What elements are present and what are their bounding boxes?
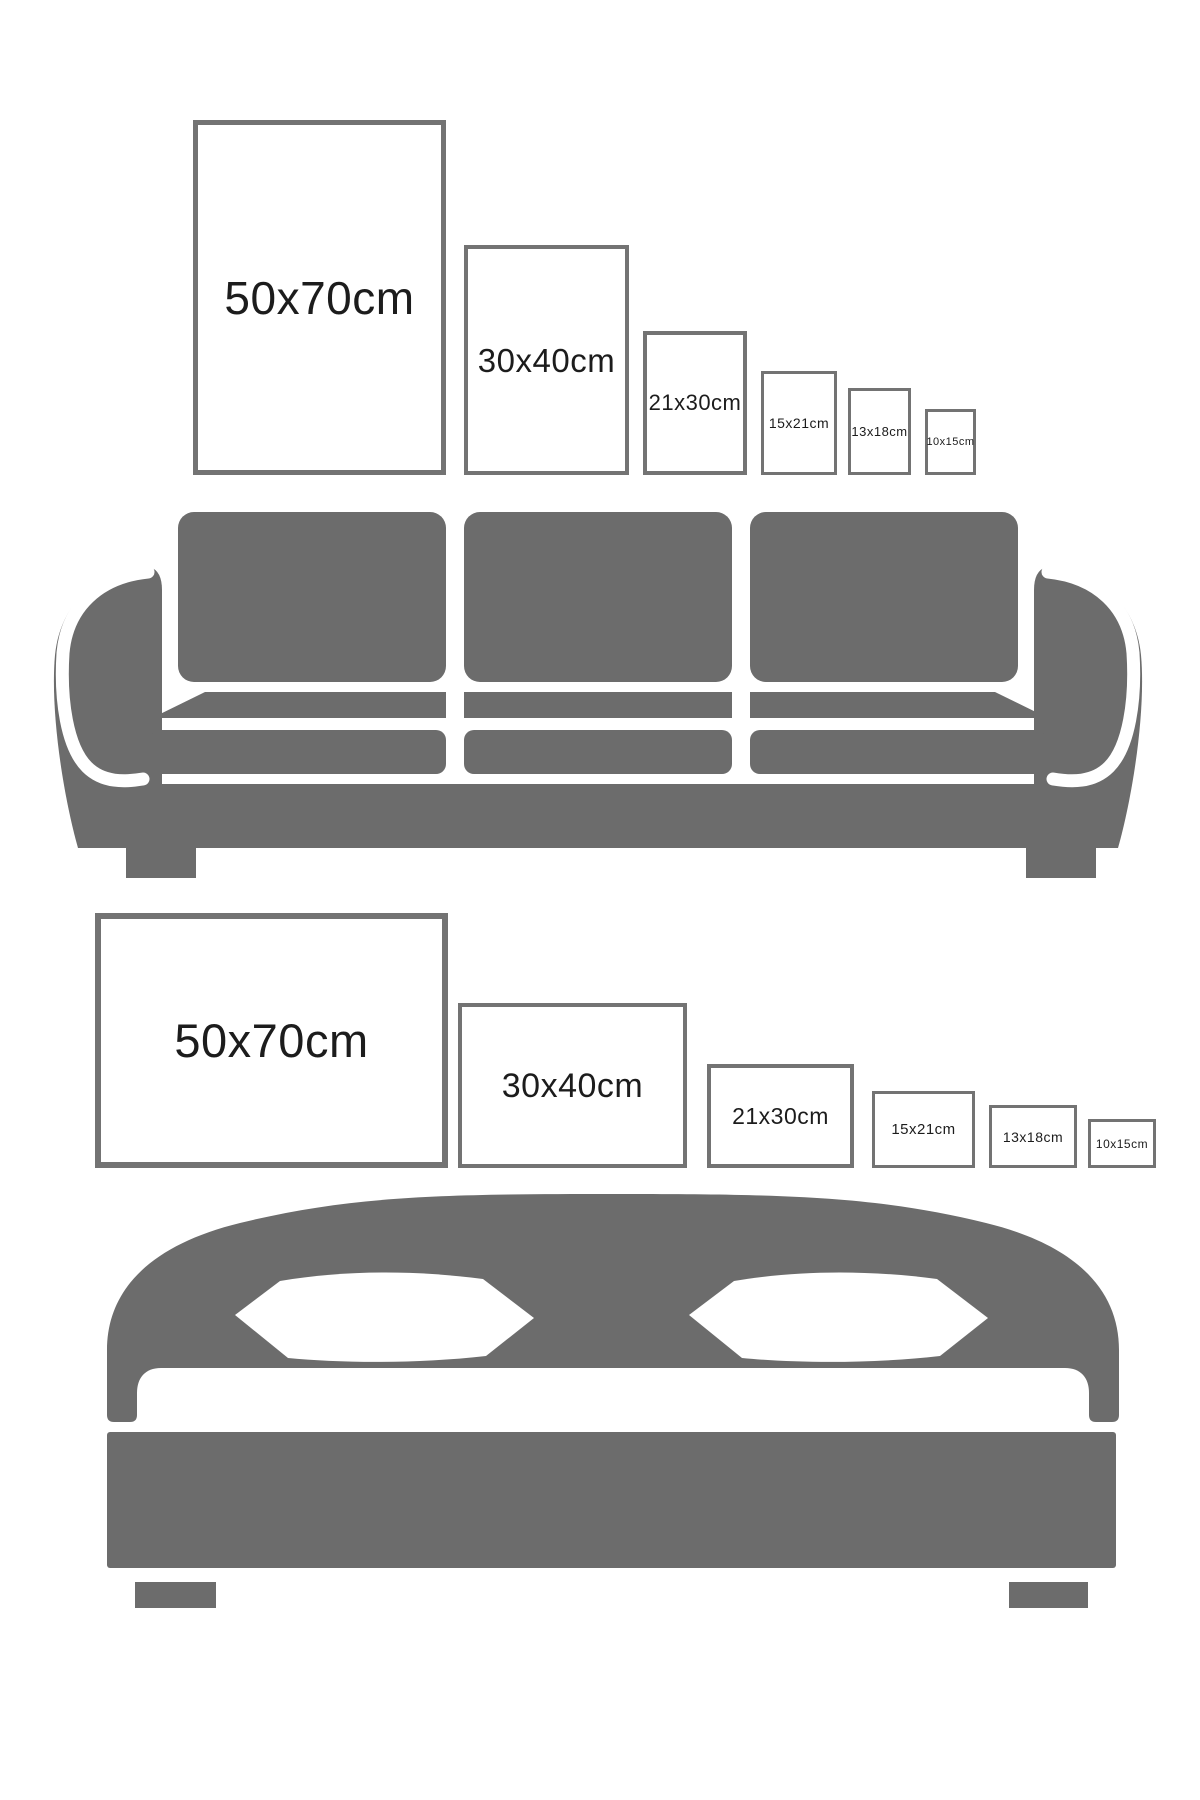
size-frame-15x21cm-portrait: 15x21cm <box>761 371 837 475</box>
sofa-seat-deck-right <box>750 692 1048 718</box>
sofa-right-foot <box>1026 848 1096 878</box>
bed-illustration <box>90 1190 1130 1620</box>
size-frame-21x30cm-portrait: 21x30cm <box>643 331 747 475</box>
size-frame-label: 30x40cm <box>502 1069 643 1103</box>
sofa-base <box>86 784 1114 848</box>
size-frame-label: 21x30cm <box>649 392 742 414</box>
bed-left-pillow <box>235 1272 534 1361</box>
size-guide-page: 50x70cm30x40cm21x30cm15x21cm13x18cm10x15… <box>0 0 1200 1800</box>
sofa-seat-deck-middle <box>464 692 732 718</box>
sofa-seat-cushion-middle <box>464 730 732 774</box>
size-frame-13x18cm-portrait: 13x18cm <box>848 388 911 475</box>
sofa-back-cushion-left <box>178 512 446 682</box>
sofa-seat-deck-left <box>152 692 446 718</box>
size-frame-50x70cm-portrait: 50x70cm <box>193 120 446 475</box>
size-frame-13x18cm-landscape: 13x18cm <box>989 1105 1077 1168</box>
sofa-illustration <box>35 495 1165 880</box>
bed-base <box>107 1432 1116 1568</box>
bed-right-pillow <box>689 1272 988 1361</box>
size-frame-label: 13x18cm <box>1003 1130 1063 1144</box>
bed-right-foot <box>1009 1582 1088 1608</box>
size-frame-label: 10x15cm <box>926 437 974 448</box>
size-frame-label: 50x70cm <box>174 1017 368 1064</box>
size-frame-30x40cm-landscape: 30x40cm <box>458 1003 687 1168</box>
size-frame-label: 10x15cm <box>1096 1138 1148 1150</box>
sofa-back-cushion-right <box>750 512 1018 682</box>
size-frame-15x21cm-landscape: 15x21cm <box>872 1091 975 1168</box>
size-frame-label: 15x21cm <box>769 416 829 430</box>
size-frame-label: 50x70cm <box>224 275 414 321</box>
bed-left-foot <box>135 1582 216 1608</box>
sofa-seat-cushion-left <box>150 730 446 774</box>
size-frame-10x15cm-landscape: 10x15cm <box>1088 1119 1156 1168</box>
size-frame-21x30cm-landscape: 21x30cm <box>707 1064 854 1168</box>
size-frame-label: 30x40cm <box>478 344 615 377</box>
sofa-seat-cushion-right <box>750 730 1046 774</box>
size-frame-10x15cm-portrait: 10x15cm <box>925 409 976 475</box>
size-frame-50x70cm-landscape: 50x70cm <box>95 913 448 1168</box>
sofa-left-foot <box>126 848 196 878</box>
sofa-back-cushion-middle <box>464 512 732 682</box>
size-frame-30x40cm-portrait: 30x40cm <box>464 245 629 475</box>
size-frame-label: 15x21cm <box>891 1122 955 1137</box>
size-frame-label: 21x30cm <box>732 1105 829 1128</box>
size-frame-label: 13x18cm <box>851 425 907 438</box>
